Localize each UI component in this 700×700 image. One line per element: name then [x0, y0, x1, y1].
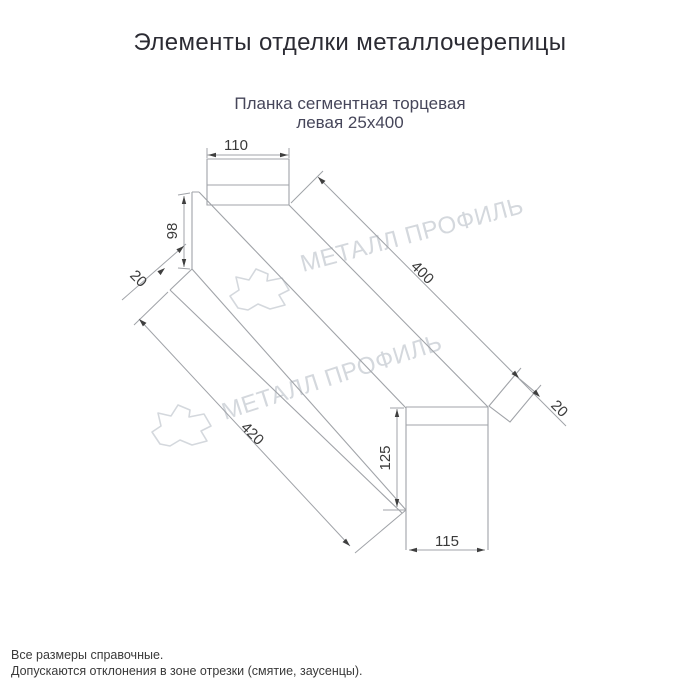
right-fold-tab [489, 375, 535, 422]
band-bottom-fold-edge [170, 290, 402, 513]
footer-note-2: Допускаются отклонения в зоне отрезки (с… [11, 663, 363, 679]
dim-400-label: 400 [407, 258, 437, 288]
footer-notes: Все размеры справочные. Допускаются откл… [11, 647, 363, 679]
dim-98-label: 98 [164, 223, 181, 240]
dim-110: 110 [207, 137, 289, 158]
dim-115-label: 115 [435, 533, 459, 550]
dim-110-label: 110 [224, 137, 248, 154]
watermark-lower: МЕТАЛЛ ПРОФИЛЬ [152, 329, 446, 446]
dim-98: 98 [164, 193, 190, 269]
watermark-upper: МЕТАЛЛ ПРОФИЛЬ [230, 192, 527, 310]
mp-cloud-logo-lower [152, 405, 211, 446]
dim-125: 125 [377, 408, 406, 510]
footer-note-1: Все размеры справочные. [11, 647, 363, 663]
right-end-segment [406, 407, 488, 550]
mp-cloud-logo-upper [230, 269, 289, 310]
watermark-text-lower: МЕТАЛЛ ПРОФИЛЬ [219, 329, 446, 426]
top-end-segment [207, 159, 289, 205]
dim-420-label: 420 [237, 419, 267, 449]
dim-20-right: 20 [533, 390, 572, 421]
dim-420: 420 [134, 292, 406, 553]
dim-20-left: 20 [122, 244, 186, 300]
technical-drawing: МЕТАЛЛ ПРОФИЛЬ МЕТАЛЛ ПРОФИЛЬ 110 [0, 0, 700, 700]
dim-125-label: 125 [377, 445, 394, 470]
dim-20-right-label: 20 [547, 397, 571, 421]
band-lower-edge [192, 269, 406, 510]
catalog-page: Элементы отделки металлочерепицы Планка … [0, 0, 700, 700]
dim-115: 115 [409, 533, 485, 552]
dim-20-left-label: 20 [126, 267, 150, 291]
